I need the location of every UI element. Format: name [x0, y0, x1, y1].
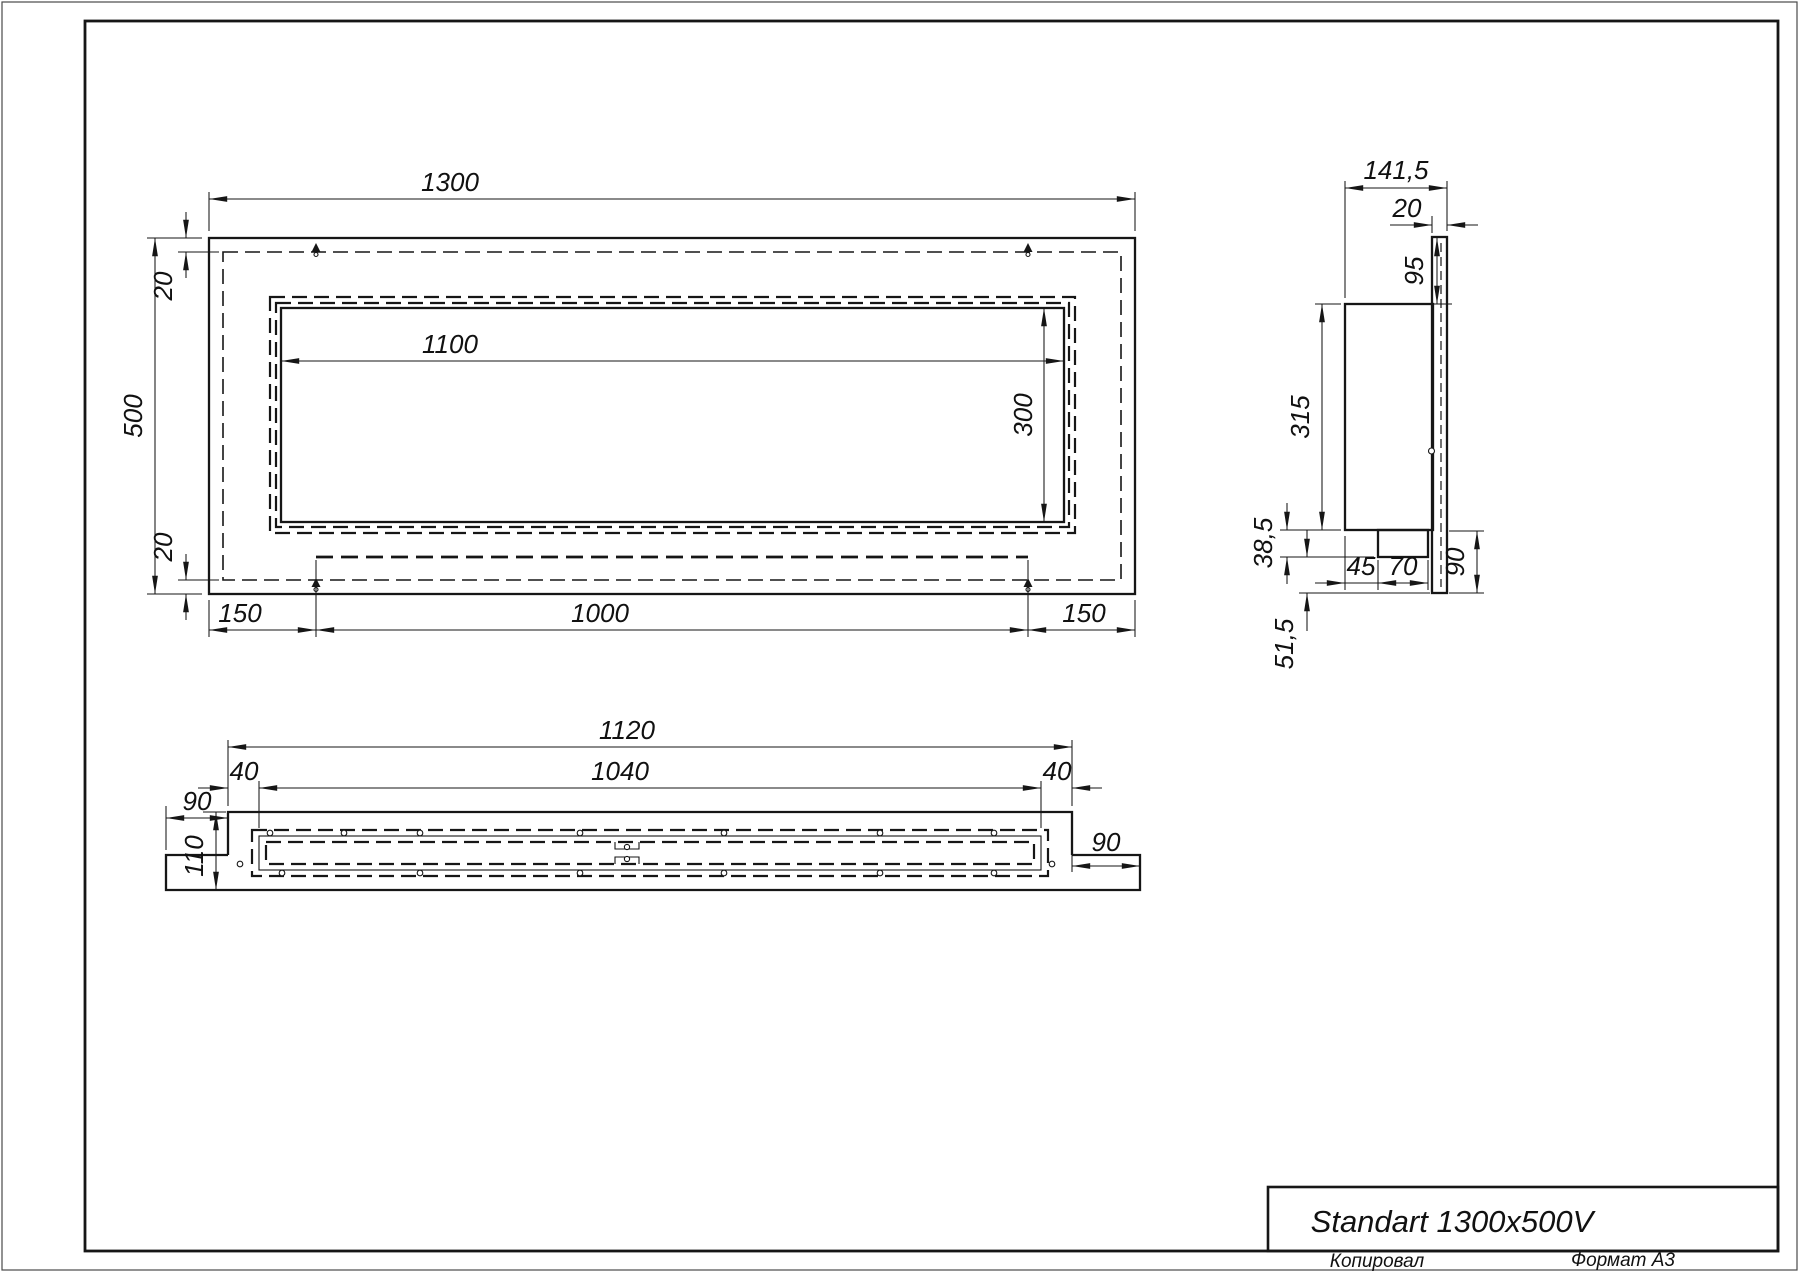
dim-label: 51,5 — [1269, 618, 1299, 669]
dim-label: 1300 — [421, 167, 479, 197]
title-block: Standart 1300x500V Копировал Формат А3 — [1268, 1187, 1778, 1272]
dim-label: 38,5 — [1248, 517, 1278, 568]
dim-label: 500 — [118, 394, 148, 438]
dim-bottom-overall: 1120 — [228, 715, 1072, 806]
hole — [624, 844, 629, 849]
hole — [237, 861, 243, 867]
dim-tray-chain: 45 70 — [1315, 536, 1428, 590]
dim-overall-width: 1300 — [209, 167, 1135, 231]
front-outline — [209, 238, 1135, 594]
dim-bottom-chain: 150 1000 150 — [209, 560, 1135, 637]
front-hidden-inset — [223, 252, 1121, 580]
dim-label: 1040 — [591, 756, 649, 786]
bottom-view: 1120 40 1040 40 90 90 110 — [166, 715, 1140, 890]
dim-label: 20 — [1392, 193, 1422, 223]
dim-label: 1000 — [571, 598, 629, 628]
side-back-plate — [1432, 237, 1447, 593]
format-label: Формат А3 — [1571, 1250, 1675, 1271]
dim-label: 20 — [148, 271, 178, 301]
dim-label: 315 — [1285, 395, 1315, 439]
dim-label: 141,5 — [1363, 155, 1429, 185]
dim-opening-height: 300 — [1008, 308, 1044, 522]
dim-bottom-inner-chain: 40 1040 40 — [198, 756, 1102, 828]
hole — [1049, 861, 1055, 867]
dim-label: 70 — [1389, 551, 1418, 581]
dim-label: 150 — [218, 598, 262, 628]
mounting-hook-icon — [1024, 243, 1033, 257]
drawing-frame — [85, 21, 1778, 1251]
front-view: 1300 1100 300 500 20 — [118, 167, 1135, 637]
dim-label: 40 — [230, 756, 259, 786]
dim-label: 40 — [1043, 756, 1072, 786]
dim-bottom-depth: 110 — [179, 812, 226, 890]
dim-label: 150 — [1062, 598, 1106, 628]
bottom-hidden-band-outer — [252, 830, 1048, 876]
bottom-body-outline — [228, 812, 1072, 855]
opening-hidden-band-outer — [270, 297, 1075, 533]
dim-top-offset: 95 — [1399, 238, 1452, 304]
opening-hidden-band-inner — [276, 303, 1069, 527]
technical-drawing: 1300 1100 300 500 20 — [0, 0, 1800, 1273]
dim-label: 1120 — [599, 715, 655, 745]
dim-body-height: 315 — [1280, 304, 1341, 530]
dim-right-flange: 90 — [1072, 827, 1140, 872]
sheet-edge — [2, 2, 1797, 1270]
side-hole — [1429, 448, 1435, 454]
side-view: 141,5 20 95 315 38,5 — [1248, 155, 1484, 669]
dim-opening-width: 1100 — [281, 329, 1064, 361]
dim-label: 110 — [179, 835, 209, 877]
drawing-title: Standart 1300x500V — [1311, 1204, 1597, 1239]
dim-label: 300 — [1008, 393, 1038, 437]
copied-label: Копировал — [1330, 1251, 1425, 1272]
bottom-hidden-band-inner — [266, 842, 1034, 864]
drawing-sheet: 1300 1100 300 500 20 — [0, 0, 1800, 1273]
dim-label: 1100 — [422, 329, 478, 359]
dim-label: 95 — [1399, 256, 1429, 285]
dim-label: 20 — [148, 532, 178, 562]
mounting-hook-icon — [312, 243, 321, 257]
opening-outline — [281, 308, 1064, 522]
dim-label: 90 — [1092, 827, 1121, 857]
hole — [624, 856, 629, 861]
dim-label: 90 — [1440, 547, 1470, 576]
side-body-outline — [1345, 304, 1433, 530]
dim-label: 45 — [1347, 551, 1376, 581]
dim-back-plate: 20 — [1390, 193, 1478, 233]
